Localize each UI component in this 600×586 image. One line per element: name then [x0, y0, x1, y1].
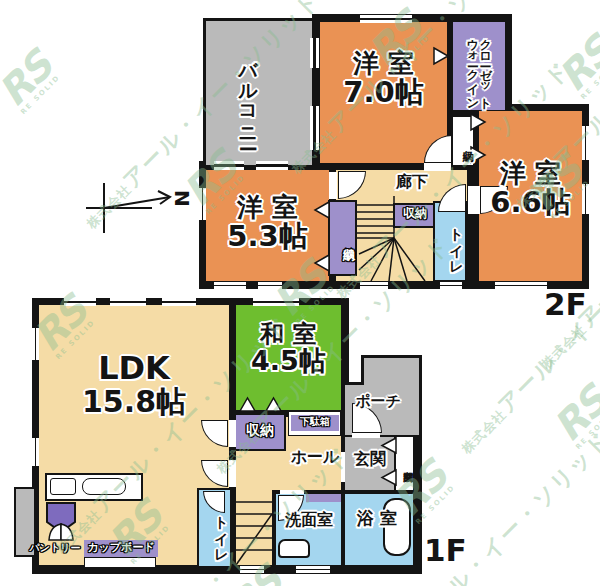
bathroom-label: 浴 室 — [346, 510, 408, 528]
stairs-1f — [236, 490, 272, 565]
closet-2f-wic-side-label: 収納 — [453, 120, 473, 164]
watermark-rs-logo: RSRE SOLID — [553, 32, 600, 102]
pantry-unit — [46, 502, 76, 542]
getabako-label: 下駄箱 — [291, 417, 339, 428]
wic-line1: ウォークイン — [466, 26, 479, 108]
window — [253, 298, 299, 306]
door-opening — [329, 172, 337, 199]
floor-label-2f: 2F — [544, 286, 587, 322]
window — [360, 282, 388, 289]
door-opening — [424, 163, 451, 171]
window — [214, 161, 244, 170]
cupboard-label: カップボード — [84, 542, 158, 554]
washer-pan — [306, 494, 341, 502]
window — [258, 282, 282, 289]
window — [110, 298, 146, 306]
room-washitsu-label: 和 室 4.5帖 — [236, 322, 341, 376]
hall-label: ホール — [286, 449, 344, 466]
kitchen-sink — [82, 478, 126, 495]
room-size: 4.5帖 — [236, 347, 341, 375]
wic-line2: クローゼット — [479, 26, 492, 108]
room-name: 和 室 — [236, 322, 341, 347]
window — [440, 282, 462, 289]
porch-label: ポーチ — [348, 394, 408, 410]
kitchen-stove — [50, 478, 76, 495]
window — [199, 188, 206, 220]
compass-north-icon: N — [84, 178, 189, 238]
window — [310, 38, 319, 68]
watermark-rs-logo: RSRE SOLID — [548, 382, 600, 452]
cupboard-cabinet — [84, 557, 156, 568]
genkan-storage-label: 玄関収納 — [397, 440, 413, 488]
watermark-company-text: 株式会社アール・イー・ソリッド — [577, 390, 600, 586]
pantry-label: パントリー — [26, 543, 84, 554]
closet-2f-53-label: 収納 — [331, 212, 355, 266]
closet-door-marker — [315, 255, 329, 271]
room-size: 5.3帖 — [206, 221, 329, 251]
door-opening — [280, 490, 304, 494]
balcony-label: バルコニー — [222, 33, 258, 155]
window — [162, 298, 196, 306]
toilet-1f-label: トイレ — [201, 503, 229, 559]
room-2f-western-53-label: 洋 室 5.3帖 — [206, 194, 329, 252]
window — [64, 298, 96, 306]
washbasin — [278, 539, 310, 558]
closet-1f-label: 収納 — [234, 423, 286, 438]
room-size: 7.0帖 — [320, 77, 447, 107]
window — [582, 184, 589, 214]
window — [296, 566, 330, 573]
washroom-label: 洗面室 — [277, 512, 341, 529]
genkan-label: 玄関 — [348, 451, 392, 468]
porch — [364, 358, 419, 386]
window — [360, 15, 412, 23]
room-ldk-label: LDK 15.8帖 — [45, 352, 223, 417]
floorplan-canvas: バルコニー 洋 室 7.0帖 ウォークイン クローゼット 収納 洋 室 6.6帖… — [0, 0, 600, 586]
hallway-label: 廊下 — [385, 174, 439, 191]
window — [310, 106, 319, 150]
compass-north-label: N — [170, 190, 194, 207]
window — [495, 282, 547, 289]
closet-door-marker — [382, 470, 396, 485]
window — [256, 161, 288, 170]
closet-door-marker — [266, 398, 281, 412]
closet-2f-hall-label: 収納 — [393, 207, 437, 220]
door-opening — [229, 460, 236, 487]
window — [214, 282, 246, 289]
closet-door-marker — [471, 114, 485, 130]
room-name: LDK — [45, 352, 223, 386]
floor-label-1f: 1F — [424, 532, 467, 568]
closet-door-marker — [240, 398, 255, 412]
watermark-rs-logo: RSRE SOLID — [0, 47, 63, 117]
room-2f-western-7-label: 洋 室 7.0帖 — [320, 50, 447, 108]
room-name: 洋 室 — [479, 160, 582, 187]
room-name: 洋 室 — [206, 194, 329, 221]
toilet-2f-label: トイレ — [437, 214, 464, 272]
room-size: 6.6帖 — [479, 187, 582, 217]
window — [32, 438, 39, 466]
room-2f-western-66-label: 洋 室 6.6帖 — [479, 160, 582, 218]
window — [582, 126, 589, 160]
walkin-closet-label: ウォークイン クローゼット — [453, 26, 505, 108]
window — [32, 328, 39, 360]
room-size: 15.8帖 — [45, 386, 223, 418]
room-name: 洋 室 — [320, 50, 447, 77]
window — [240, 566, 264, 573]
